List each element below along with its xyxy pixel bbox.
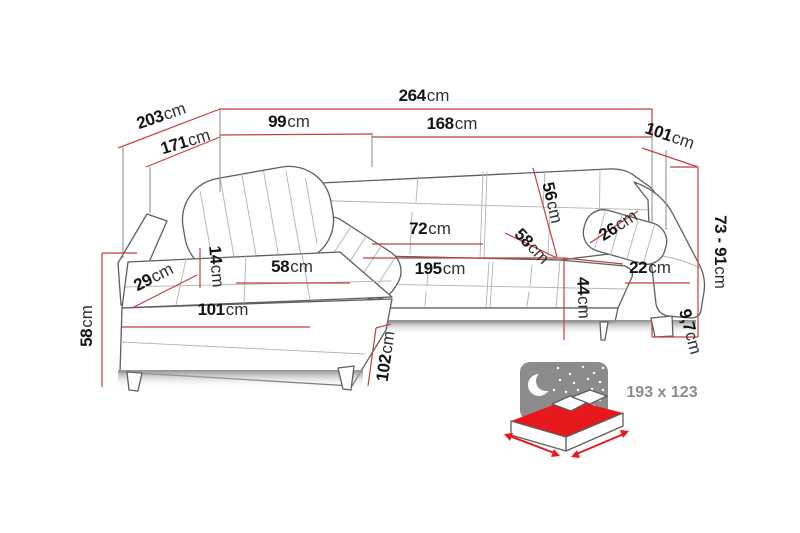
sofa-drawing (118, 160, 705, 391)
floor-shadow-left (118, 370, 363, 388)
dim-168-label: 168cm (427, 114, 478, 133)
floor-shadow-right (370, 320, 696, 335)
dim-line-99 (220, 134, 372, 135)
dim-264-label: 264cm (399, 86, 450, 105)
dim-44-label: 44cm (573, 277, 593, 319)
sofa-leg-mid (600, 322, 608, 340)
dim-73-91-label: 73 - 91cm (711, 215, 730, 289)
dim-58-height-label: 58cm (77, 305, 96, 347)
dim-14-label: 14cm (205, 245, 228, 288)
dim-171-label: 171cm (158, 125, 212, 158)
dim-203-label: 203cm (134, 99, 188, 134)
dim-72-label: 72cm (409, 219, 451, 238)
dim-101-top-label: 101cm (643, 119, 697, 154)
sofa-dimension-diagram: 264cm 203cm 171cm 99cm 168cm 101cm 73 - … (0, 0, 800, 533)
sleeping-area-size: 193 x 123 (626, 384, 697, 401)
dim-195-label: 195cm (415, 259, 466, 278)
chaise-leg-left (127, 372, 142, 391)
dim-22-label: 22cm (629, 258, 671, 277)
sofa-bed-night-icon: 193 x 123 (504, 362, 698, 458)
sofa-leg-right (651, 316, 673, 337)
dim-99-label: 99cm (268, 112, 310, 131)
dim-58-seat-label: 58cm (271, 257, 313, 276)
dim-101-front-label: 101cm (198, 300, 249, 319)
diagram-canvas: 264cm 203cm 171cm 99cm 168cm 101cm 73 - … (0, 0, 800, 533)
